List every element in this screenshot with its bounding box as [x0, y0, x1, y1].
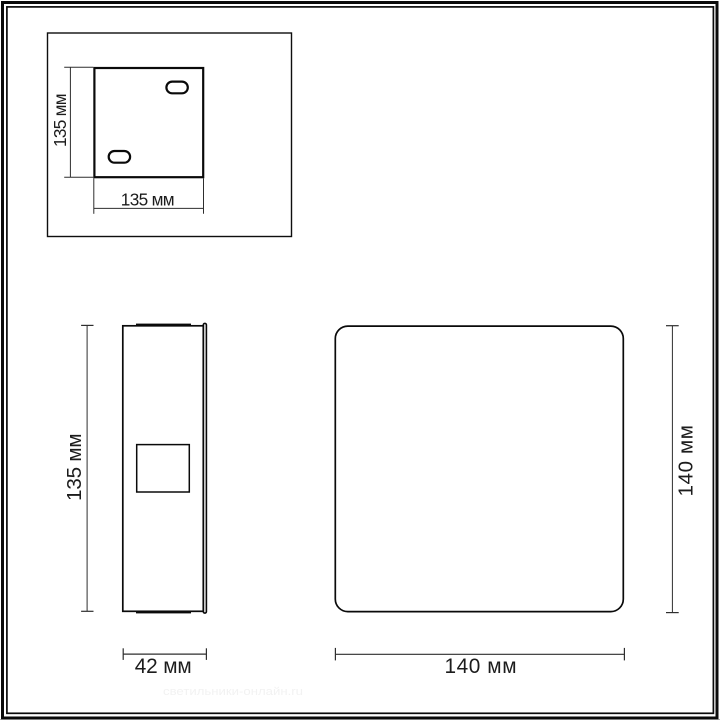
svg-text:140 мм: 140 мм	[445, 655, 517, 678]
svg-text:135 мм: 135 мм	[63, 433, 86, 501]
svg-text:42 мм: 42 мм	[135, 655, 192, 678]
svg-text:135 мм: 135 мм	[121, 190, 175, 210]
svg-text:140 мм: 140 мм	[674, 425, 697, 497]
svg-text:светильники-онлайн.ru: светильники-онлайн.ru	[163, 686, 303, 698]
svg-text:135 мм: 135 мм	[50, 93, 70, 147]
